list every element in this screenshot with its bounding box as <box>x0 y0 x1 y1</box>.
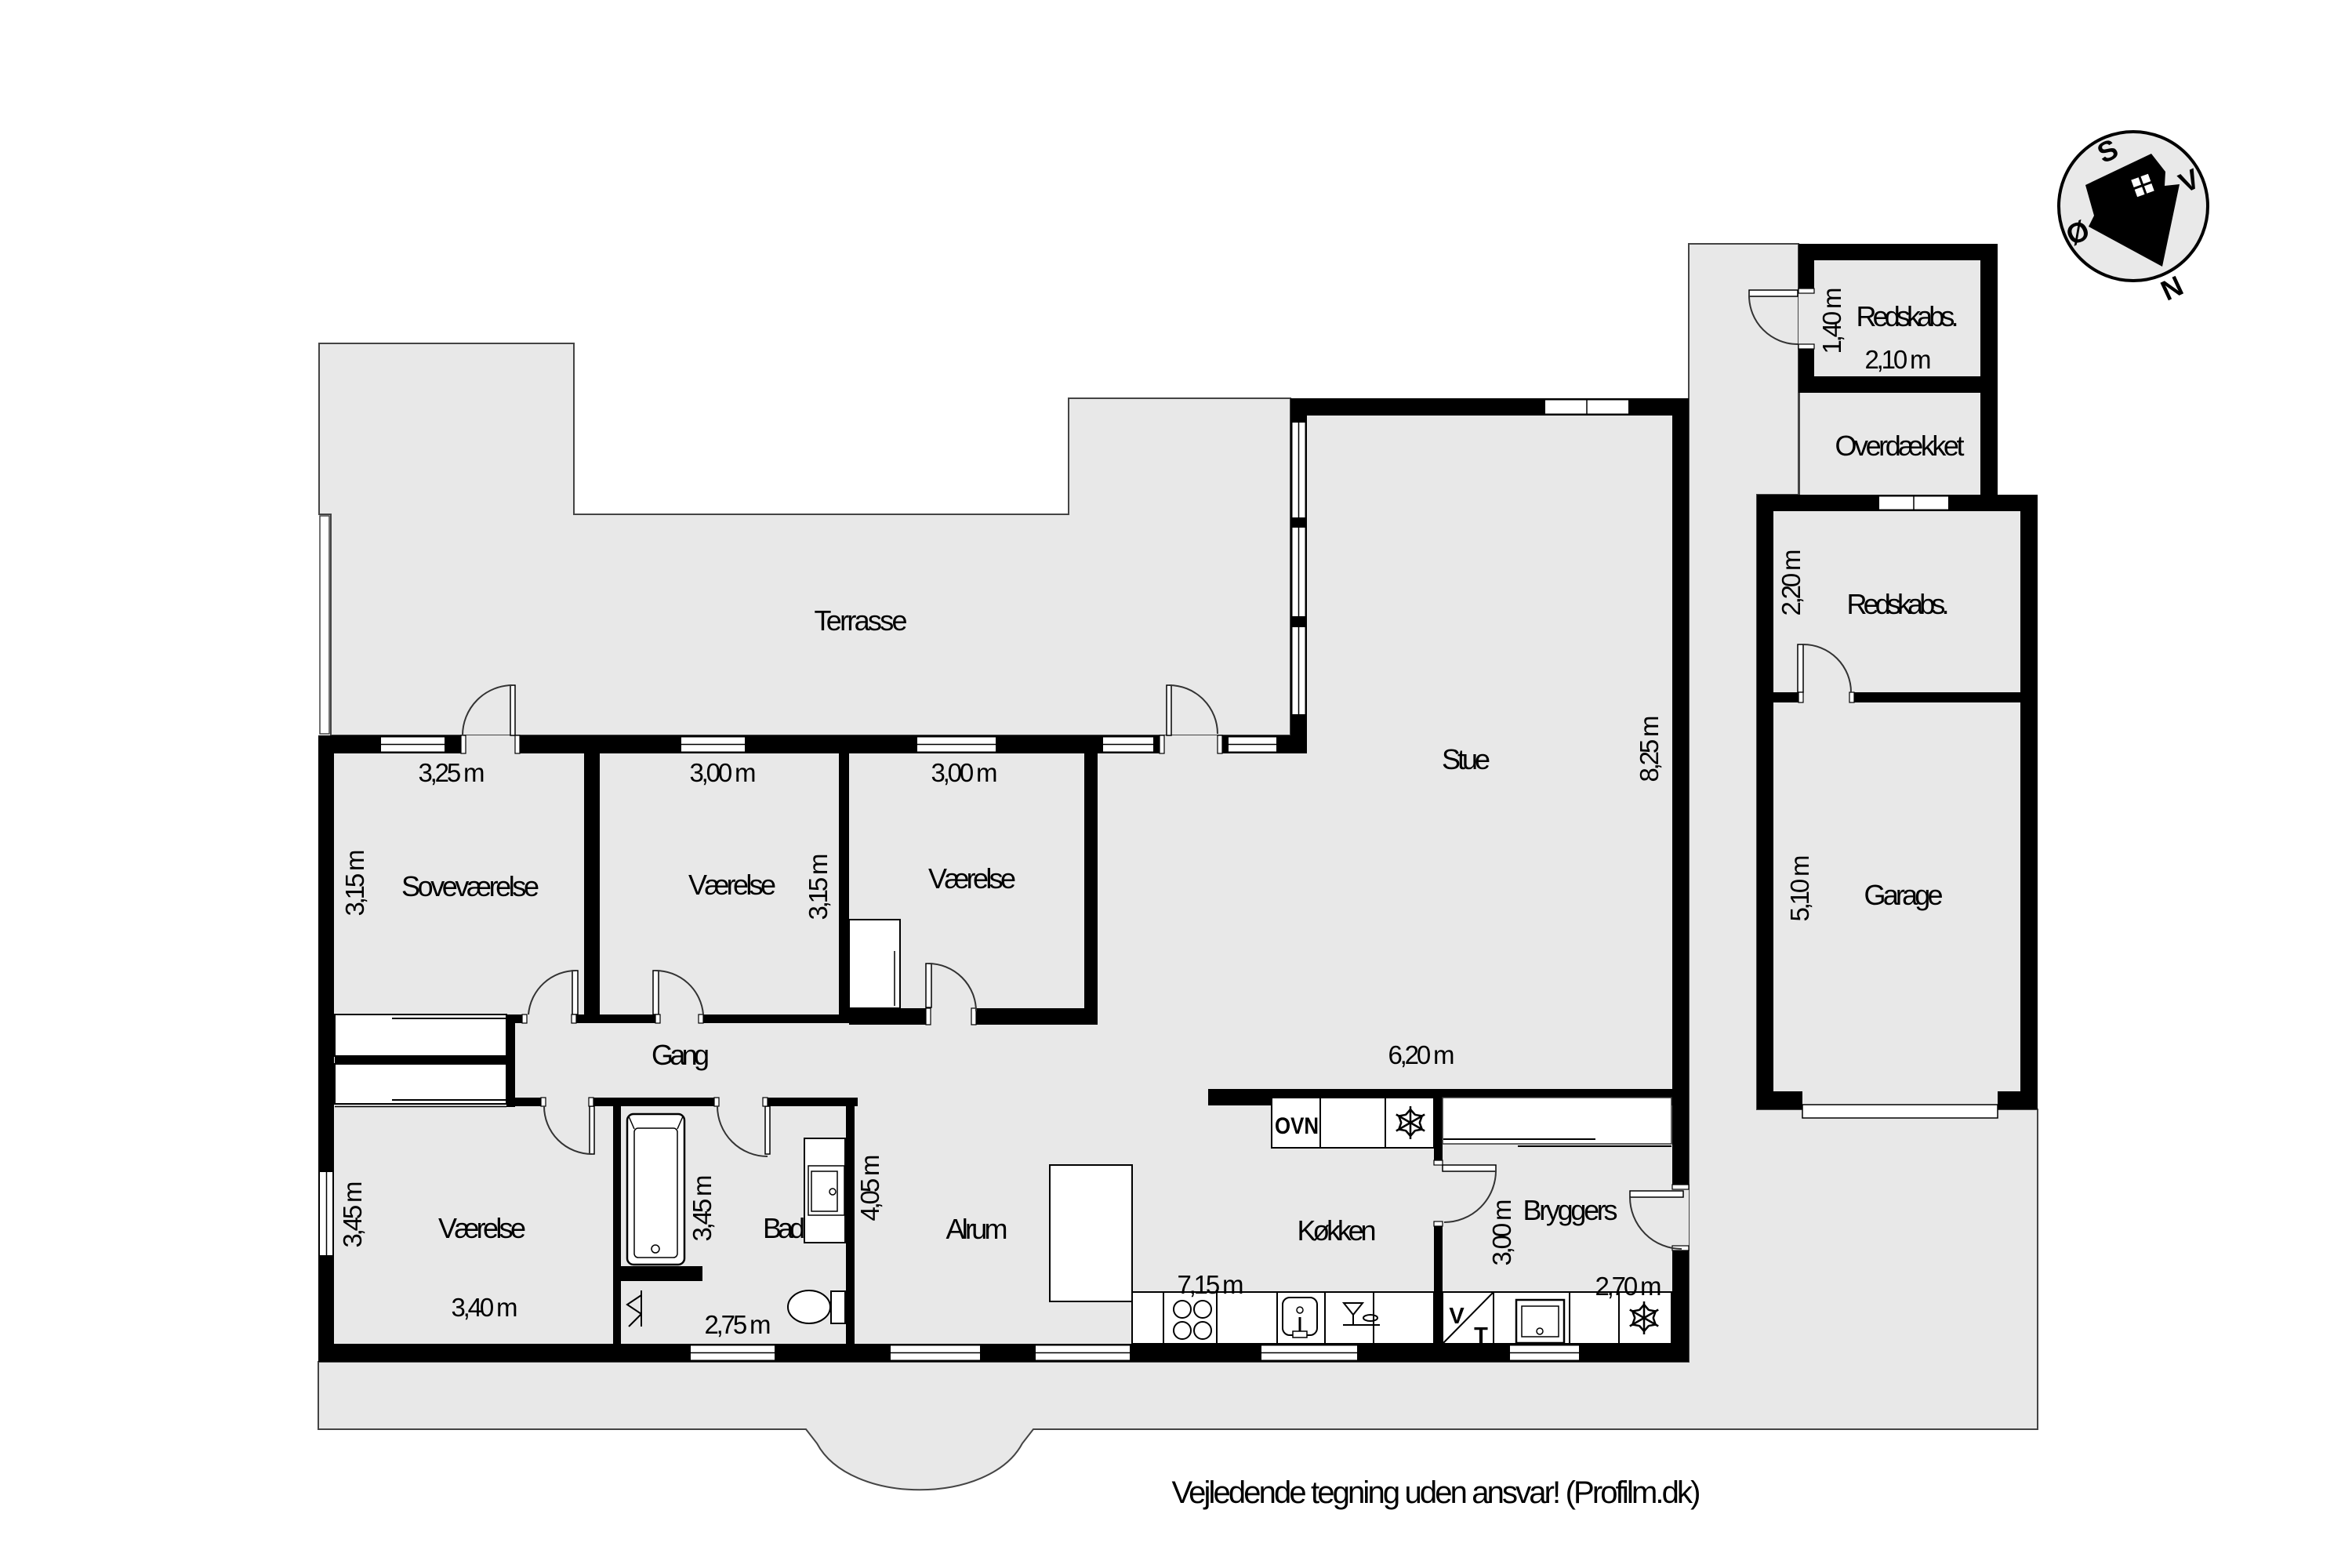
svg-text:Bad: Bad <box>763 1212 805 1244</box>
svg-text:3,00 m: 3,00 m <box>931 758 998 787</box>
svg-text:2,75 m: 2,75 m <box>705 1310 771 1339</box>
svg-text:Soveværelse: Soveværelse <box>401 870 539 902</box>
svg-text:3,15 m: 3,15 m <box>804 854 833 920</box>
svg-text:1,40 m: 1,40 m <box>1817 288 1846 354</box>
svg-text:6,20 m: 6,20 m <box>1388 1040 1455 1069</box>
svg-text:T: T <box>1474 1323 1488 1348</box>
svg-text:2,10 m: 2,10 m <box>1865 345 1932 374</box>
svg-text:Køkken: Køkken <box>1298 1214 1377 1247</box>
svg-text:Redskabs.: Redskabs. <box>1847 588 1950 620</box>
svg-text:3,25 m: 3,25 m <box>419 758 485 787</box>
svg-text:Stue: Stue <box>1442 743 1490 775</box>
svg-text:5,10 m: 5,10 m <box>1785 855 1814 922</box>
svg-text:Overdækket: Overdækket <box>1835 430 1965 462</box>
svg-text:Bryggers: Bryggers <box>1523 1194 1618 1226</box>
svg-text:Værelse: Værelse <box>928 862 1016 895</box>
svg-text:Vejledende tegning uden ansvar: Vejledende tegning uden ansvar! (Profilm… <box>1172 1475 1701 1510</box>
svg-text:3,45 m: 3,45 m <box>338 1181 367 1248</box>
svg-text:V: V <box>1449 1304 1465 1329</box>
svg-text:3,15 m: 3,15 m <box>340 850 369 916</box>
svg-text:Terrasse: Terrasse <box>815 604 908 637</box>
svg-text:2,70 m: 2,70 m <box>1595 1272 1662 1301</box>
svg-text:3,00 m: 3,00 m <box>690 758 757 787</box>
svg-text:Værelse: Værelse <box>438 1212 526 1244</box>
svg-text:2,20 m: 2,20 m <box>1777 550 1806 616</box>
svg-text:Garage: Garage <box>1864 879 1944 911</box>
svg-text:Alrum: Alrum <box>946 1213 1008 1245</box>
svg-text:Værelse: Værelse <box>688 869 776 901</box>
svg-text:Redskabs.: Redskabs. <box>1857 300 1959 332</box>
svg-text:8,25 m: 8,25 m <box>1635 716 1664 782</box>
svg-text:Gang: Gang <box>652 1039 710 1071</box>
svg-text:7,15 m: 7,15 m <box>1178 1270 1244 1299</box>
svg-text:4,05 m: 4,05 m <box>855 1155 884 1221</box>
svg-text:3,45 m: 3,45 m <box>688 1175 717 1242</box>
svg-text:OVN: OVN <box>1275 1113 1319 1139</box>
svg-text:3,00 m: 3,00 m <box>1487 1200 1516 1266</box>
svg-text:3,40 m: 3,40 m <box>452 1293 518 1322</box>
